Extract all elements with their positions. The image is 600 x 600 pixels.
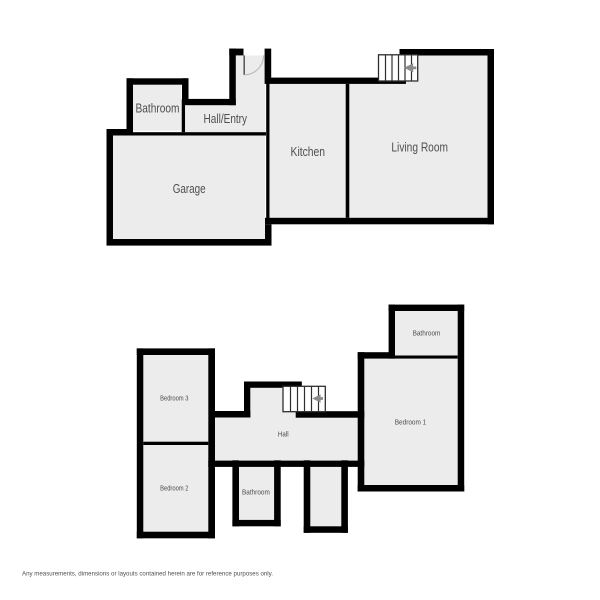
- svg-text:Garage: Garage: [173, 182, 206, 196]
- svg-text:Hall: Hall: [278, 430, 289, 439]
- svg-text:Kitchen: Kitchen: [291, 145, 326, 159]
- svg-text:Bathroom: Bathroom: [136, 102, 180, 116]
- svg-text:Hall/Entry: Hall/Entry: [204, 112, 248, 126]
- svg-text:Bathroom: Bathroom: [413, 329, 441, 338]
- svg-text:Bedroom 1: Bedroom 1: [395, 417, 427, 426]
- svg-text:Any measurements, dimensions o: Any measurements, dimensions or layouts …: [22, 570, 273, 577]
- svg-text:Bedroom 3: Bedroom 3: [160, 394, 188, 403]
- svg-text:Bathroom: Bathroom: [242, 487, 270, 496]
- svg-text:Bedroom 2: Bedroom 2: [160, 484, 188, 493]
- svg-text:Living Room: Living Room: [391, 140, 448, 154]
